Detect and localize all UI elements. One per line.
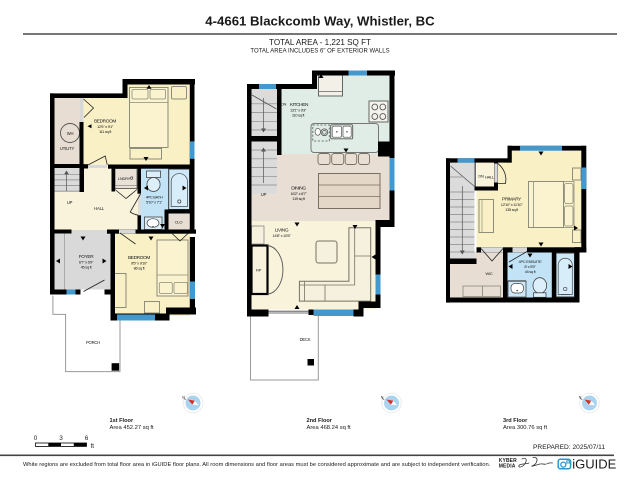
svg-text:1st Floor: 1st Floor xyxy=(110,418,134,424)
svg-text:4-4661 Blackcomb Way, Whistler: 4-4661 Blackcomb Way, Whistler, BC xyxy=(205,13,435,28)
svg-text:110 sq ft: 110 sq ft xyxy=(292,113,306,118)
svg-text:2nd Floor: 2nd Floor xyxy=(307,418,333,424)
svg-text:135 sq ft: 135 sq ft xyxy=(505,207,519,212)
svg-text:CLO: CLO xyxy=(175,220,183,225)
svg-text:UP: UP xyxy=(67,200,73,205)
svg-text:PORCH: PORCH xyxy=(86,340,100,345)
svg-text:MEDIA: MEDIA xyxy=(499,463,516,469)
svg-text:White regions are excluded fro: White regions are excluded from total fl… xyxy=(23,462,491,468)
svg-text:WIC: WIC xyxy=(486,271,493,276)
svg-text:UTILITY: UTILITY xyxy=(60,146,75,151)
svg-text:WH: WH xyxy=(67,131,74,136)
svg-text:119 sq ft: 119 sq ft xyxy=(292,196,306,201)
svg-text:6: 6 xyxy=(85,435,89,442)
svg-text:DN: DN xyxy=(478,174,484,179)
svg-text:LNDRY: LNDRY xyxy=(118,176,131,181)
svg-text:14'8" x 10'5": 14'8" x 10'5" xyxy=(272,233,291,238)
svg-text:Area 452.27 sq ft: Area 452.27 sq ft xyxy=(110,425,155,431)
svg-text:Area 300.76 sq ft: Area 300.76 sq ft xyxy=(503,425,548,431)
svg-text:PREPARED: 2025/07/11: PREPARED: 2025/07/11 xyxy=(533,444,605,451)
svg-text:TOTAL AREA INCLUDES 6" OF EXTE: TOTAL AREA INCLUDES 6" OF EXTERIOR WALLS xyxy=(250,49,389,55)
svg-text:HALL: HALL xyxy=(485,175,495,180)
svg-text:111 sq ft: 111 sq ft xyxy=(99,129,112,134)
svg-text:DECK: DECK xyxy=(300,337,311,342)
svg-text:Area 468.24 sq ft: Area 468.24 sq ft xyxy=(307,425,352,431)
svg-text:TOTAL AREA - 1,221 SQ FT: TOTAL AREA - 1,221 SQ FT xyxy=(269,38,371,47)
svg-text:iGUIDE: iGUIDE xyxy=(572,456,616,471)
svg-text:86 sq ft: 86 sq ft xyxy=(134,266,146,271)
svg-text:3rd Floor: 3rd Floor xyxy=(503,418,528,424)
svg-text:44 sq ft: 44 sq ft xyxy=(525,269,537,274)
svg-text:F/P: F/P xyxy=(256,268,262,273)
svg-text:HALL: HALL xyxy=(94,206,105,211)
svg-text:3: 3 xyxy=(59,435,63,442)
svg-text:ft: ft xyxy=(91,443,95,450)
svg-text:0: 0 xyxy=(34,435,38,442)
svg-text:UP: UP xyxy=(261,192,267,197)
svg-text:5'10" x 7'1": 5'10" x 7'1" xyxy=(146,200,163,205)
svg-text:DN: DN xyxy=(281,102,287,107)
svg-text:45 sq ft: 45 sq ft xyxy=(81,265,93,270)
